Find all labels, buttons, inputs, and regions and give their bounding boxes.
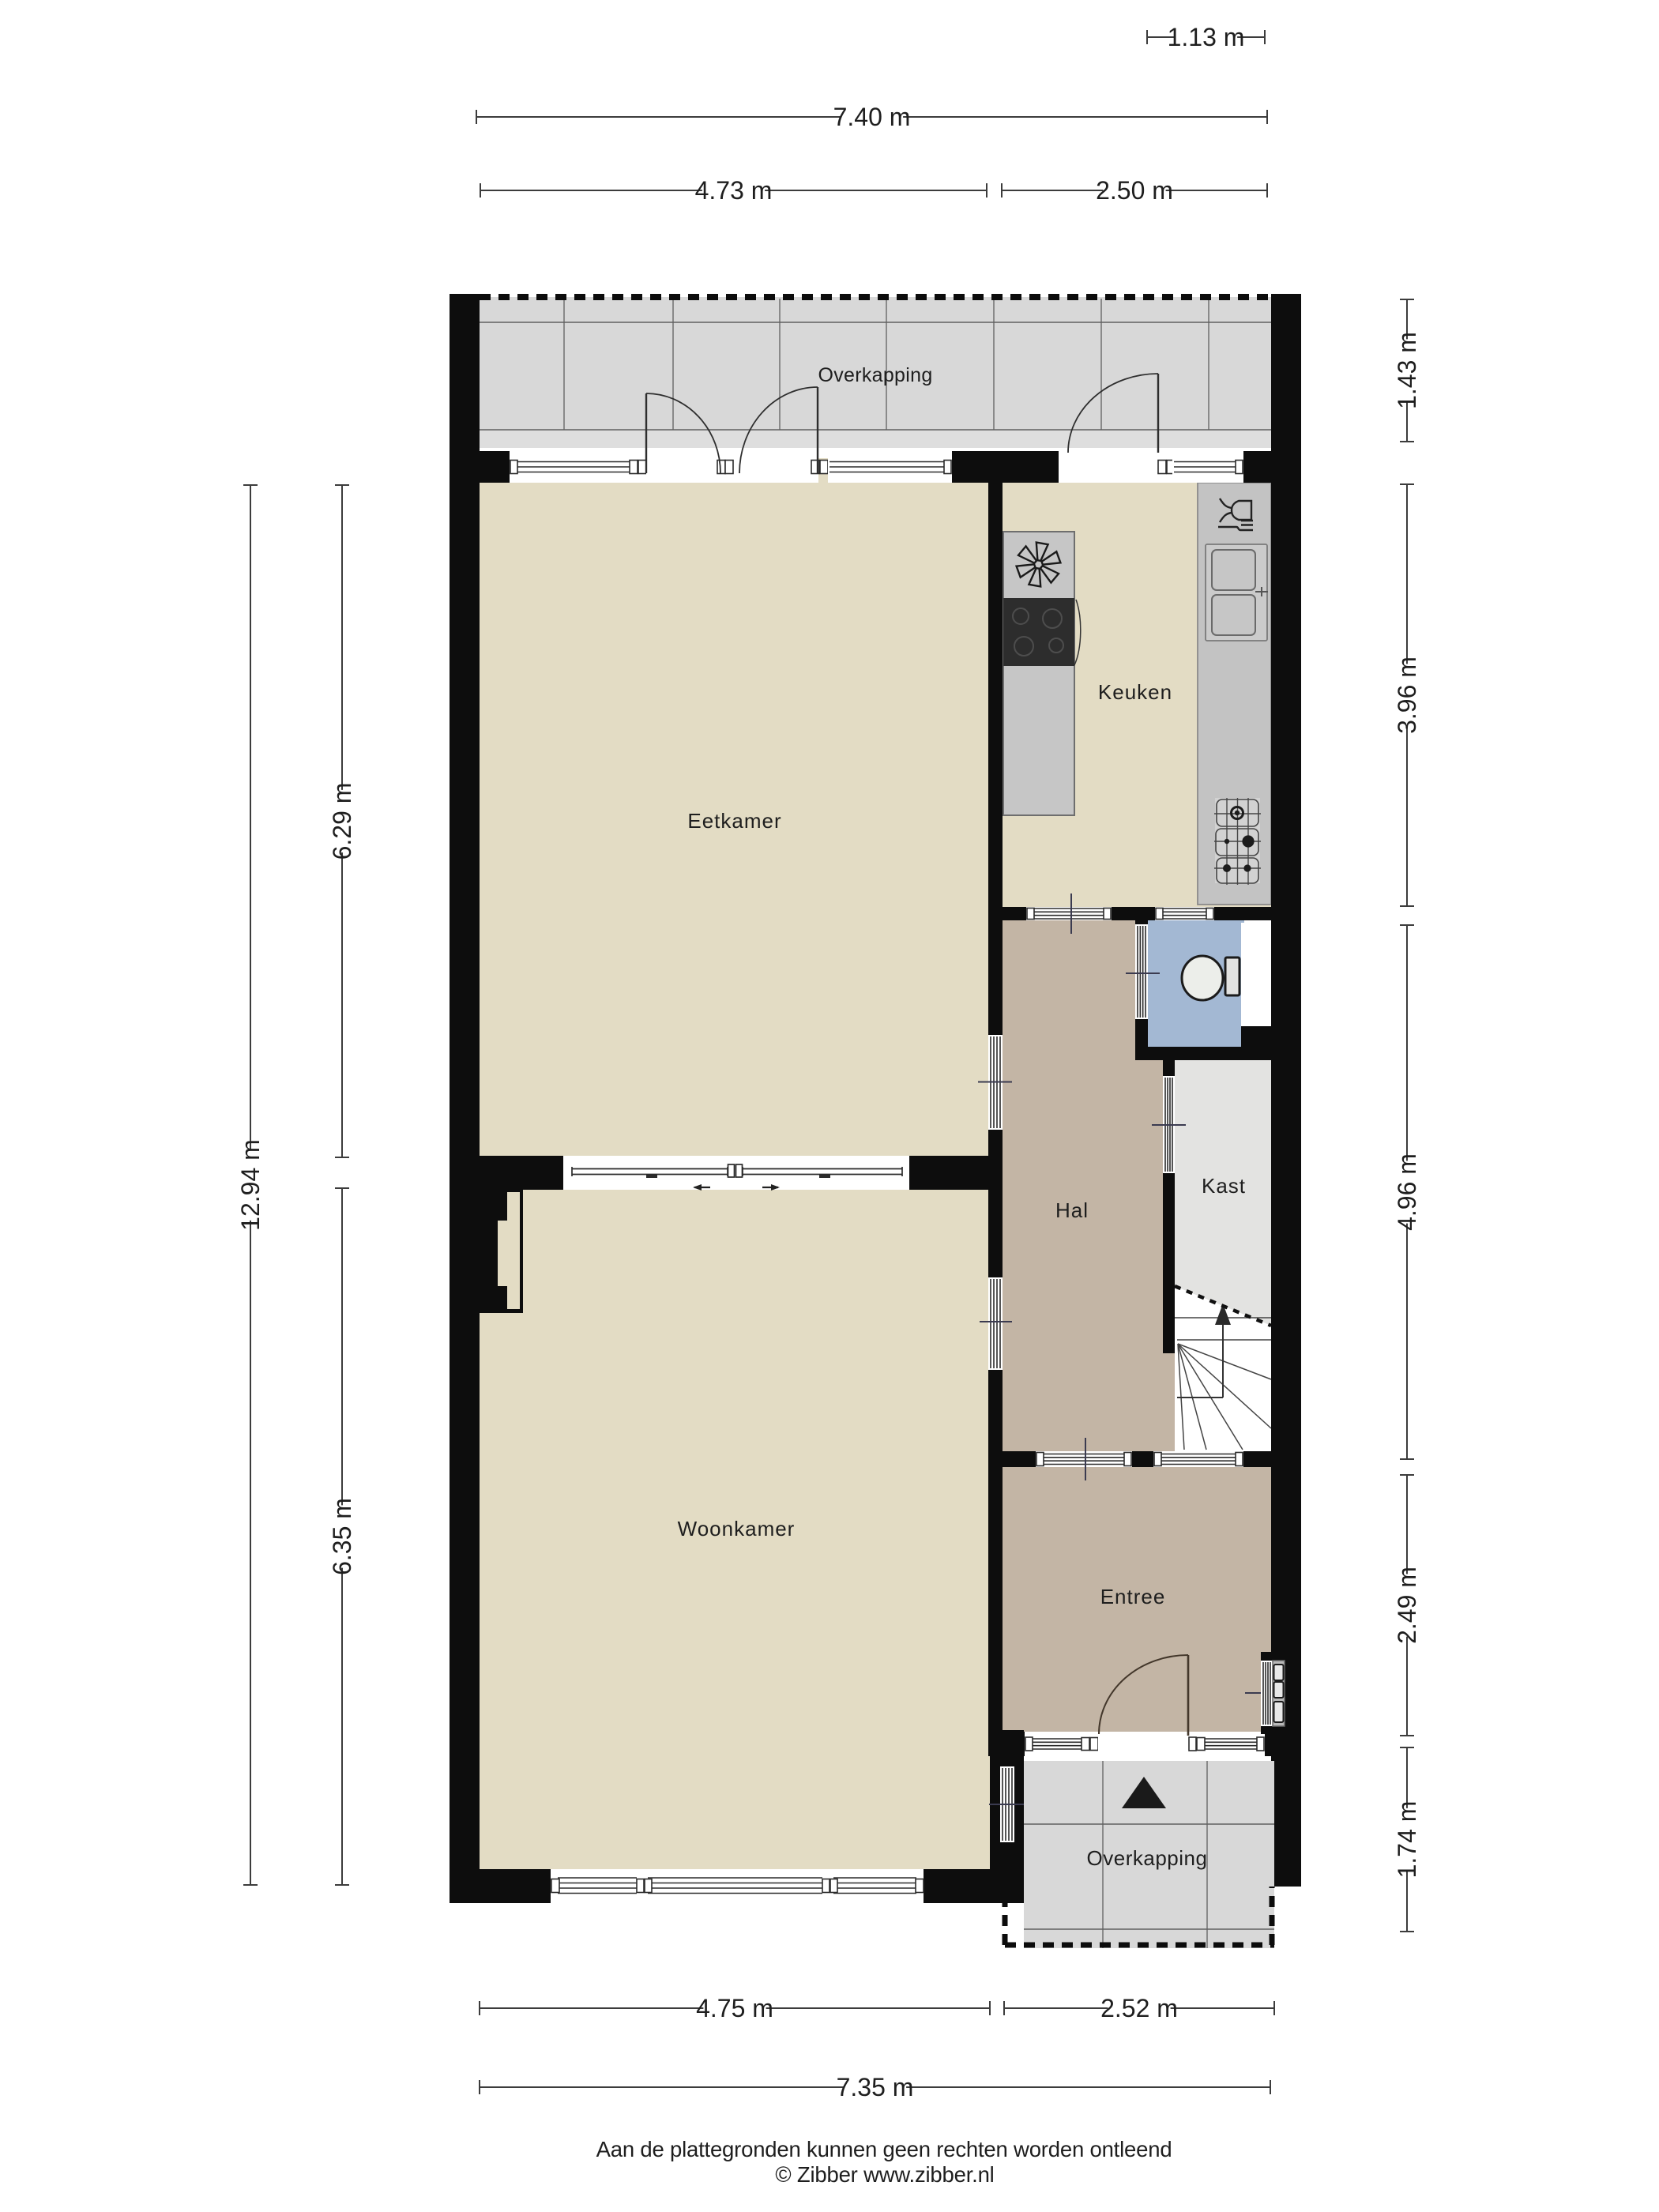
svg-text:4.75 m: 4.75 m — [696, 1994, 773, 2022]
svg-text:4.96 m: 4.96 m — [1393, 1153, 1421, 1231]
svg-text:Eetkamer: Eetkamer — [687, 809, 781, 833]
svg-text:1.74 m: 1.74 m — [1393, 1801, 1421, 1879]
svg-text:2.50 m: 2.50 m — [1096, 176, 1173, 205]
svg-text:© Zibber www.zibber.nl: © Zibber www.zibber.nl — [775, 2162, 994, 2187]
svg-text:2.52 m: 2.52 m — [1100, 1994, 1178, 2022]
svg-text:12.94 m: 12.94 m — [236, 1139, 265, 1231]
svg-text:6.29 m: 6.29 m — [328, 783, 356, 860]
svg-text:Aan de plattegronden kunnen ge: Aan de plattegronden kunnen geen rechten… — [596, 2137, 1172, 2161]
svg-text:Kast: Kast — [1202, 1174, 1246, 1198]
svg-text:Hal: Hal — [1055, 1198, 1089, 1222]
svg-text:Woonkamer: Woonkamer — [678, 1517, 796, 1540]
svg-text:1.43 m: 1.43 m — [1393, 332, 1421, 409]
svg-text:Overkapping: Overkapping — [818, 364, 932, 386]
svg-text:7.40 m: 7.40 m — [833, 103, 911, 131]
svg-text:Entree: Entree — [1100, 1585, 1166, 1608]
svg-text:2.49 m: 2.49 m — [1393, 1567, 1421, 1644]
svg-text:3.96 m: 3.96 m — [1393, 656, 1421, 734]
svg-text:6.35 m: 6.35 m — [328, 1498, 356, 1575]
svg-text:Overkapping: Overkapping — [1087, 1846, 1208, 1870]
svg-text:1.13 m: 1.13 m — [1168, 23, 1245, 51]
svg-text:Keuken: Keuken — [1098, 680, 1172, 704]
svg-text:7.35 m: 7.35 m — [837, 2073, 914, 2101]
svg-text:4.73 m: 4.73 m — [695, 176, 773, 205]
